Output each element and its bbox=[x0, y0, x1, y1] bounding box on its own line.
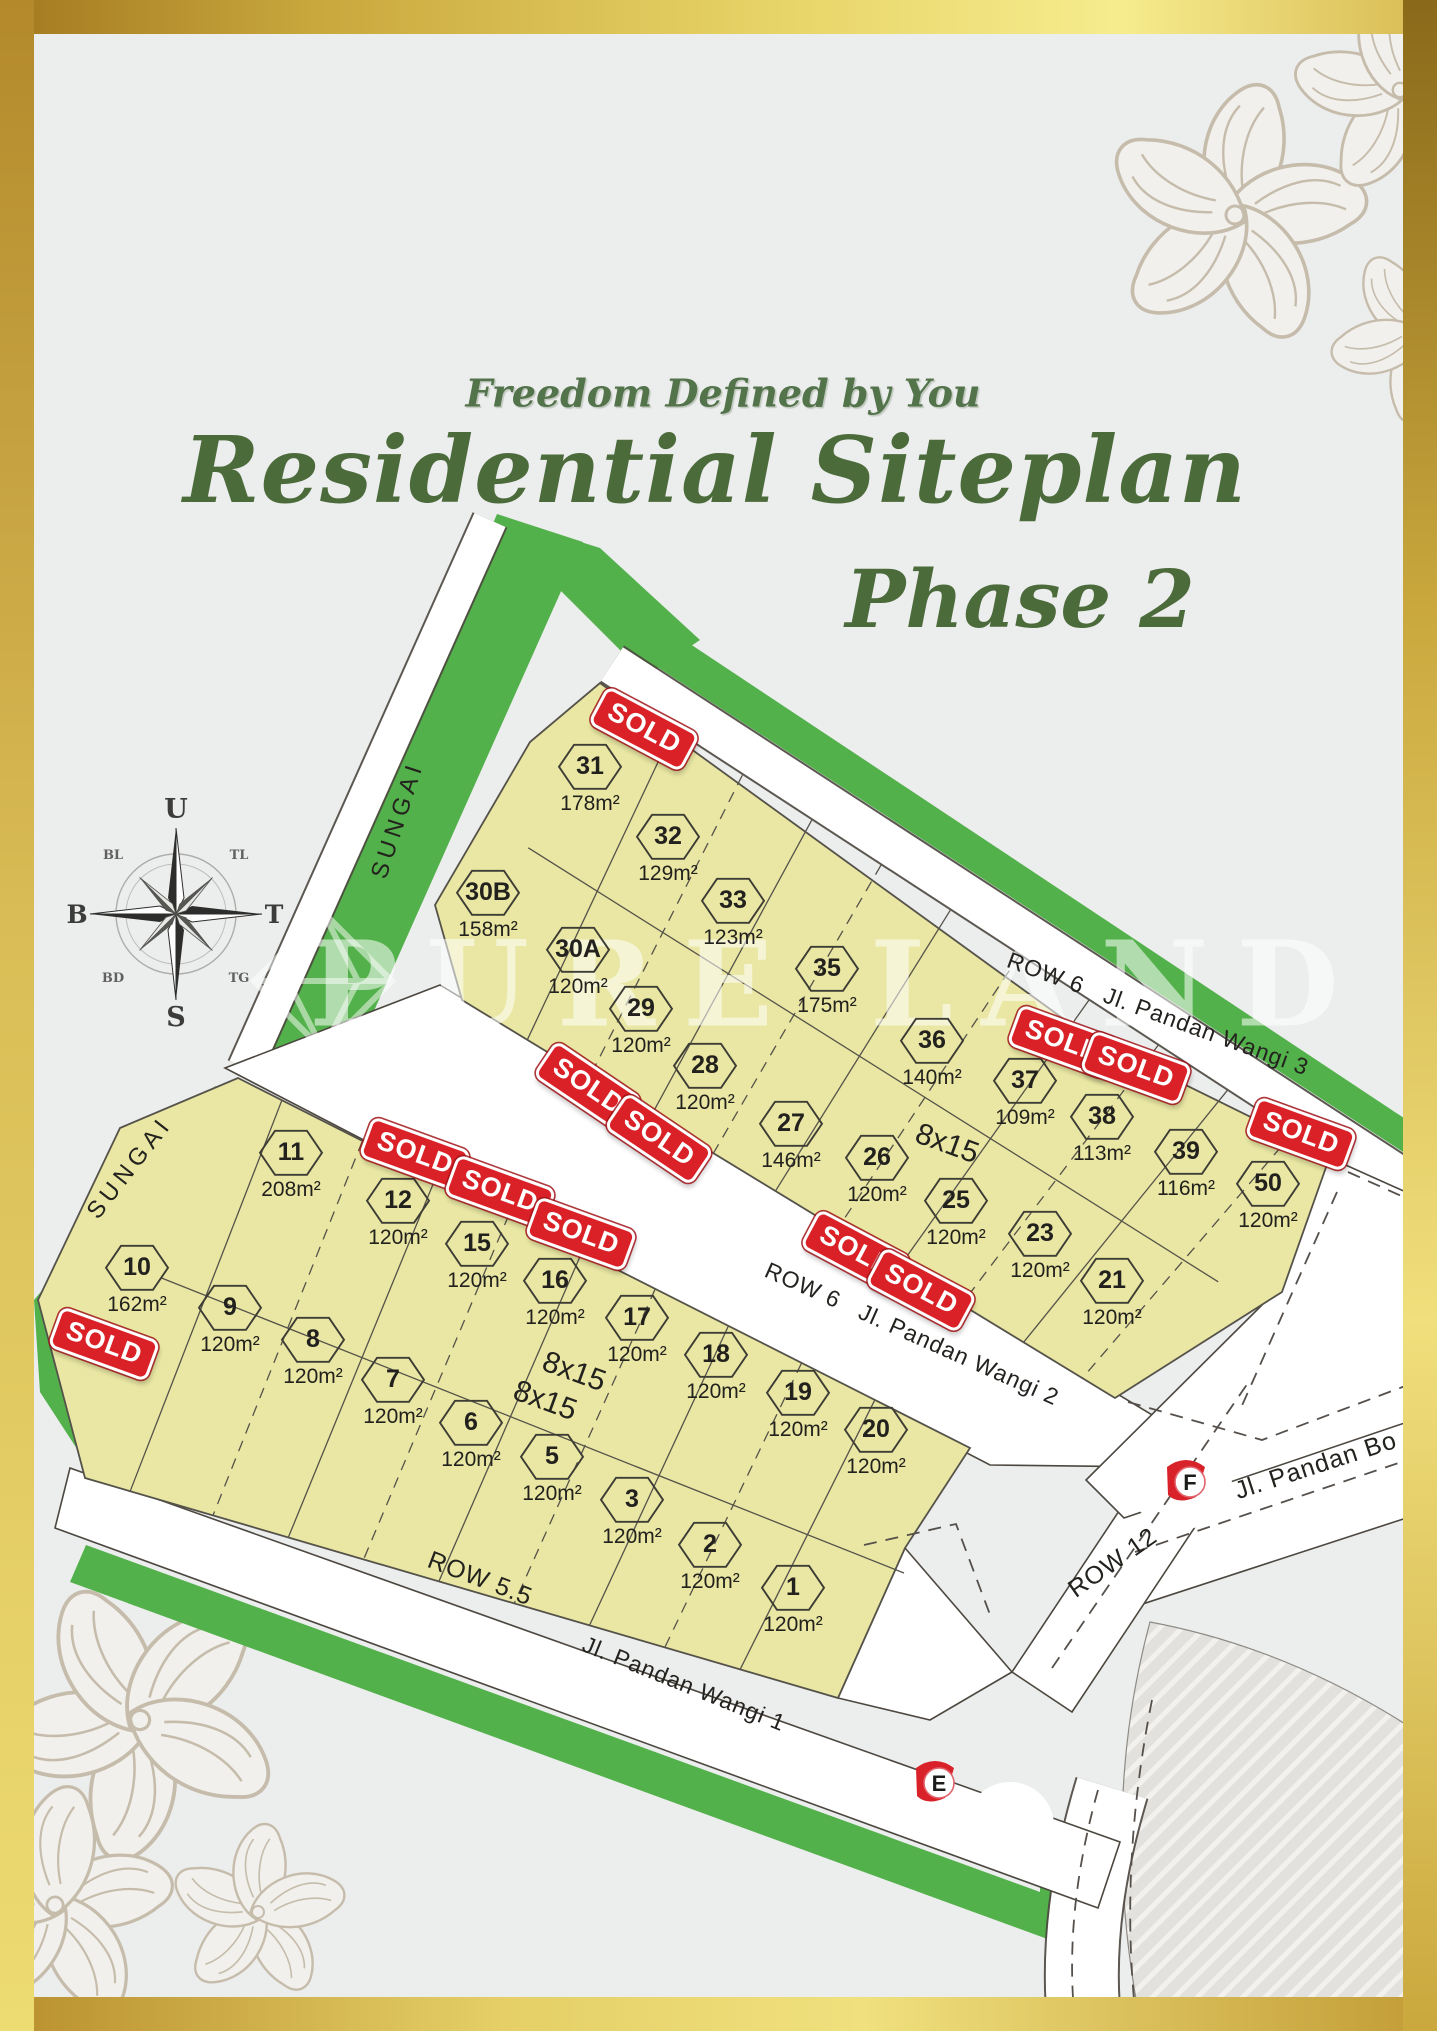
lot-number: 27 bbox=[758, 1100, 824, 1146]
lot-number: 12 bbox=[365, 1177, 431, 1223]
lot-area: 120m² bbox=[1208, 1209, 1328, 1233]
lot-area: 120m² bbox=[733, 1613, 853, 1637]
gate-marker-E: E bbox=[909, 1756, 961, 1808]
lot-area: 120m² bbox=[816, 1455, 936, 1479]
compass-ne-label: TL bbox=[230, 848, 249, 863]
page-subtitle: Phase 2 bbox=[845, 552, 1195, 646]
lot-area: 175m² bbox=[767, 994, 887, 1018]
lot-number: 23 bbox=[1007, 1210, 1073, 1256]
lot-32: 32129m² bbox=[608, 813, 728, 886]
lot-number: 30A bbox=[545, 926, 611, 972]
gold-frame-bottom bbox=[0, 1997, 1437, 2031]
lot-number: 5 bbox=[519, 1433, 585, 1479]
compass-rose: U T S B BL TL BD TG bbox=[64, 798, 288, 1034]
gold-frame-left bbox=[0, 0, 34, 2031]
lot-number: 29 bbox=[608, 985, 674, 1031]
lot-number: 3 bbox=[599, 1476, 665, 1522]
lot-33: 33123m² bbox=[673, 877, 793, 950]
lot-number: 32 bbox=[635, 813, 701, 859]
svg-text:E: E bbox=[932, 1771, 947, 1796]
lot-number: 1 bbox=[760, 1564, 826, 1610]
lot-number: 33 bbox=[700, 877, 766, 923]
lot-number: 30B bbox=[455, 869, 521, 915]
lot-area: 120m² bbox=[1052, 1306, 1172, 1330]
lot-area: 208m² bbox=[231, 1178, 351, 1202]
compass-east-label: T bbox=[265, 900, 284, 929]
lot-1: 1120m² bbox=[733, 1564, 853, 1637]
lot-number: 26 bbox=[844, 1134, 910, 1180]
gold-frame-right bbox=[1403, 0, 1437, 2031]
compass-north-label: U bbox=[164, 798, 188, 825]
lot-number: 7 bbox=[360, 1356, 426, 1402]
compass-west-label: B bbox=[66, 900, 87, 929]
lot-35: 35175m² bbox=[767, 945, 887, 1018]
gate-marker-F: F bbox=[1160, 1455, 1212, 1507]
lot-number: 35 bbox=[794, 945, 860, 991]
siteplan-poster: PURE LAND SUNGAISUNGAIROW 6 Jl. Pandan W… bbox=[0, 0, 1437, 2031]
tagline: Freedom Defined by You bbox=[465, 371, 980, 416]
lot-number: 28 bbox=[672, 1042, 738, 1088]
compass-sw-label: BD bbox=[102, 971, 124, 986]
page-title: Residential Siteplan bbox=[183, 416, 1247, 524]
lot-number: 31 bbox=[557, 743, 623, 789]
lot-number: 21 bbox=[1079, 1257, 1145, 1303]
hatched-area bbox=[1122, 1622, 1437, 2031]
lot-20: 20120m² bbox=[816, 1406, 936, 1479]
lot-number: 11 bbox=[258, 1129, 324, 1175]
lot-number: 10 bbox=[104, 1244, 170, 1290]
lot-number: 36 bbox=[899, 1017, 965, 1063]
lot-number: 20 bbox=[843, 1406, 909, 1452]
gold-frame-top bbox=[0, 0, 1437, 34]
compass-south-label: S bbox=[166, 1002, 186, 1033]
lot-number: 50 bbox=[1235, 1160, 1301, 1206]
lot-number: 2 bbox=[677, 1521, 743, 1567]
lot-50: 50120m² bbox=[1208, 1160, 1328, 1233]
svg-text:F: F bbox=[1183, 1470, 1196, 1495]
lot-31: 31178m² bbox=[530, 743, 650, 816]
lot-11: 11208m² bbox=[231, 1129, 351, 1202]
compass-se-label: TG bbox=[229, 971, 250, 986]
lot-21: 21120m² bbox=[1052, 1257, 1172, 1330]
compass-nw-label: BL bbox=[103, 848, 123, 863]
